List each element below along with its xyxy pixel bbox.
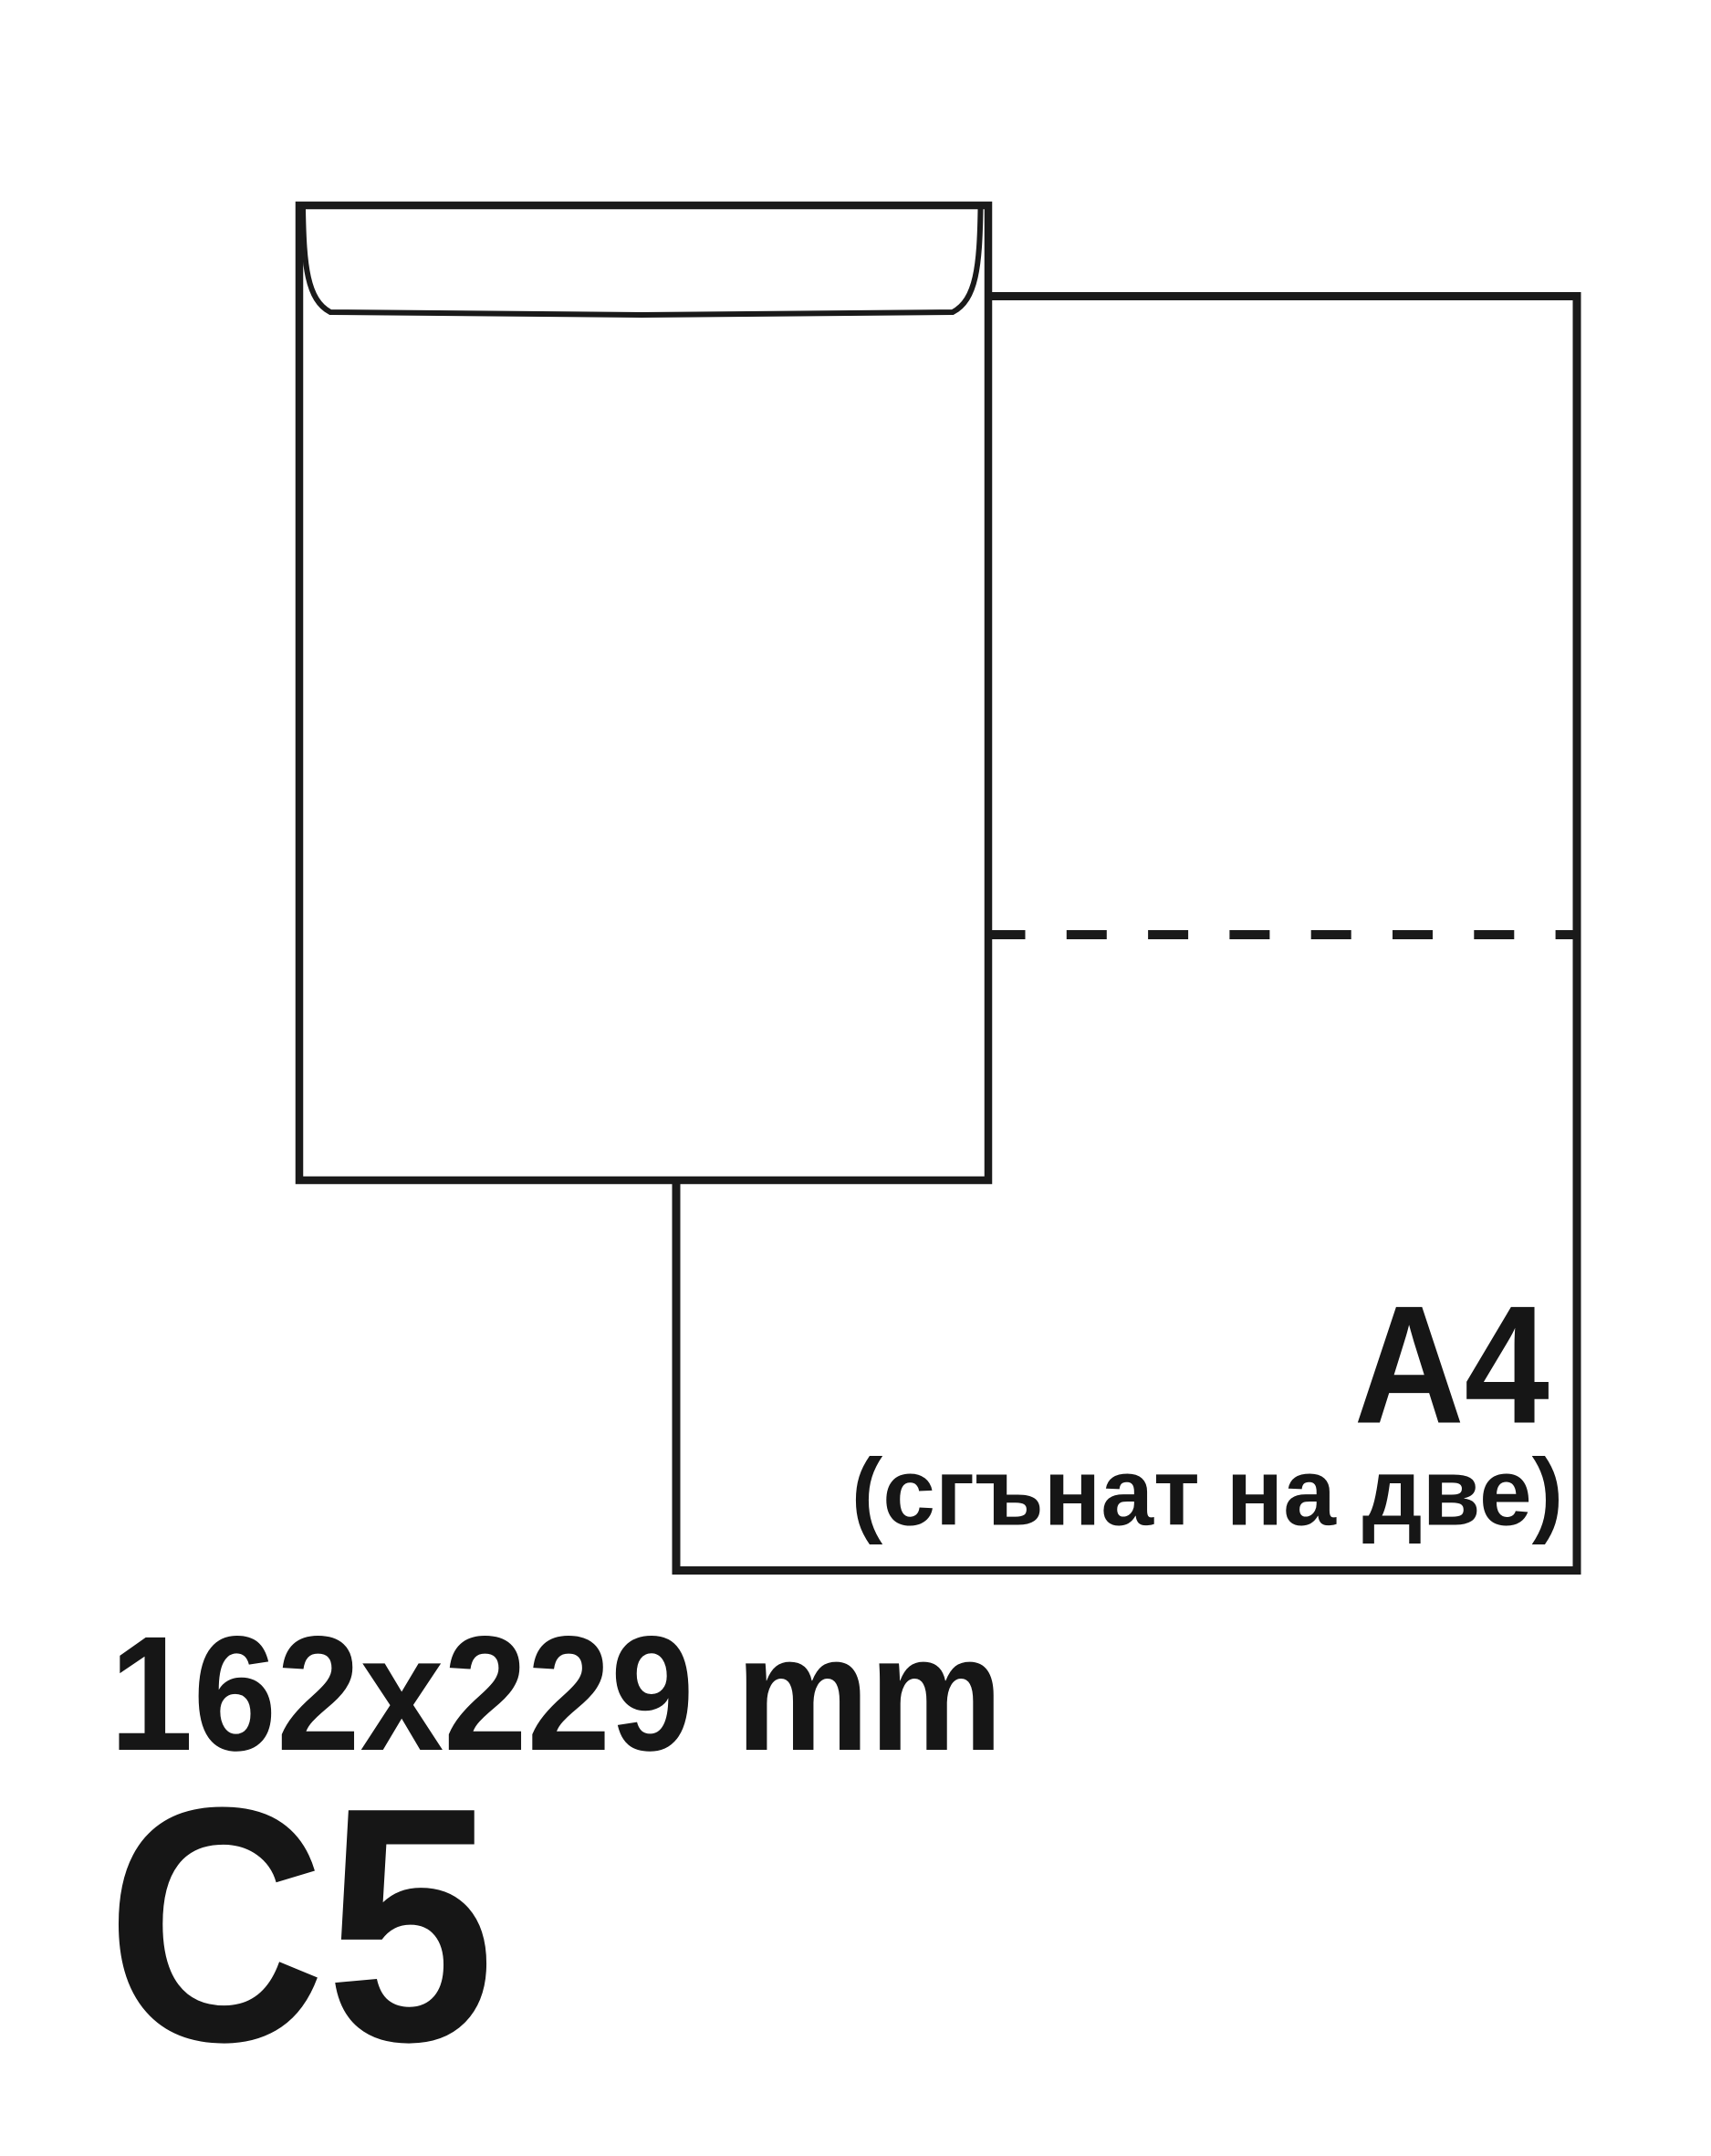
svg-text:C5: C5 (106, 1739, 495, 2112)
svg-text:(сгънат на две): (сгънат на две) (851, 1439, 1563, 1545)
svg-text:A4: A4 (1354, 1272, 1549, 1459)
